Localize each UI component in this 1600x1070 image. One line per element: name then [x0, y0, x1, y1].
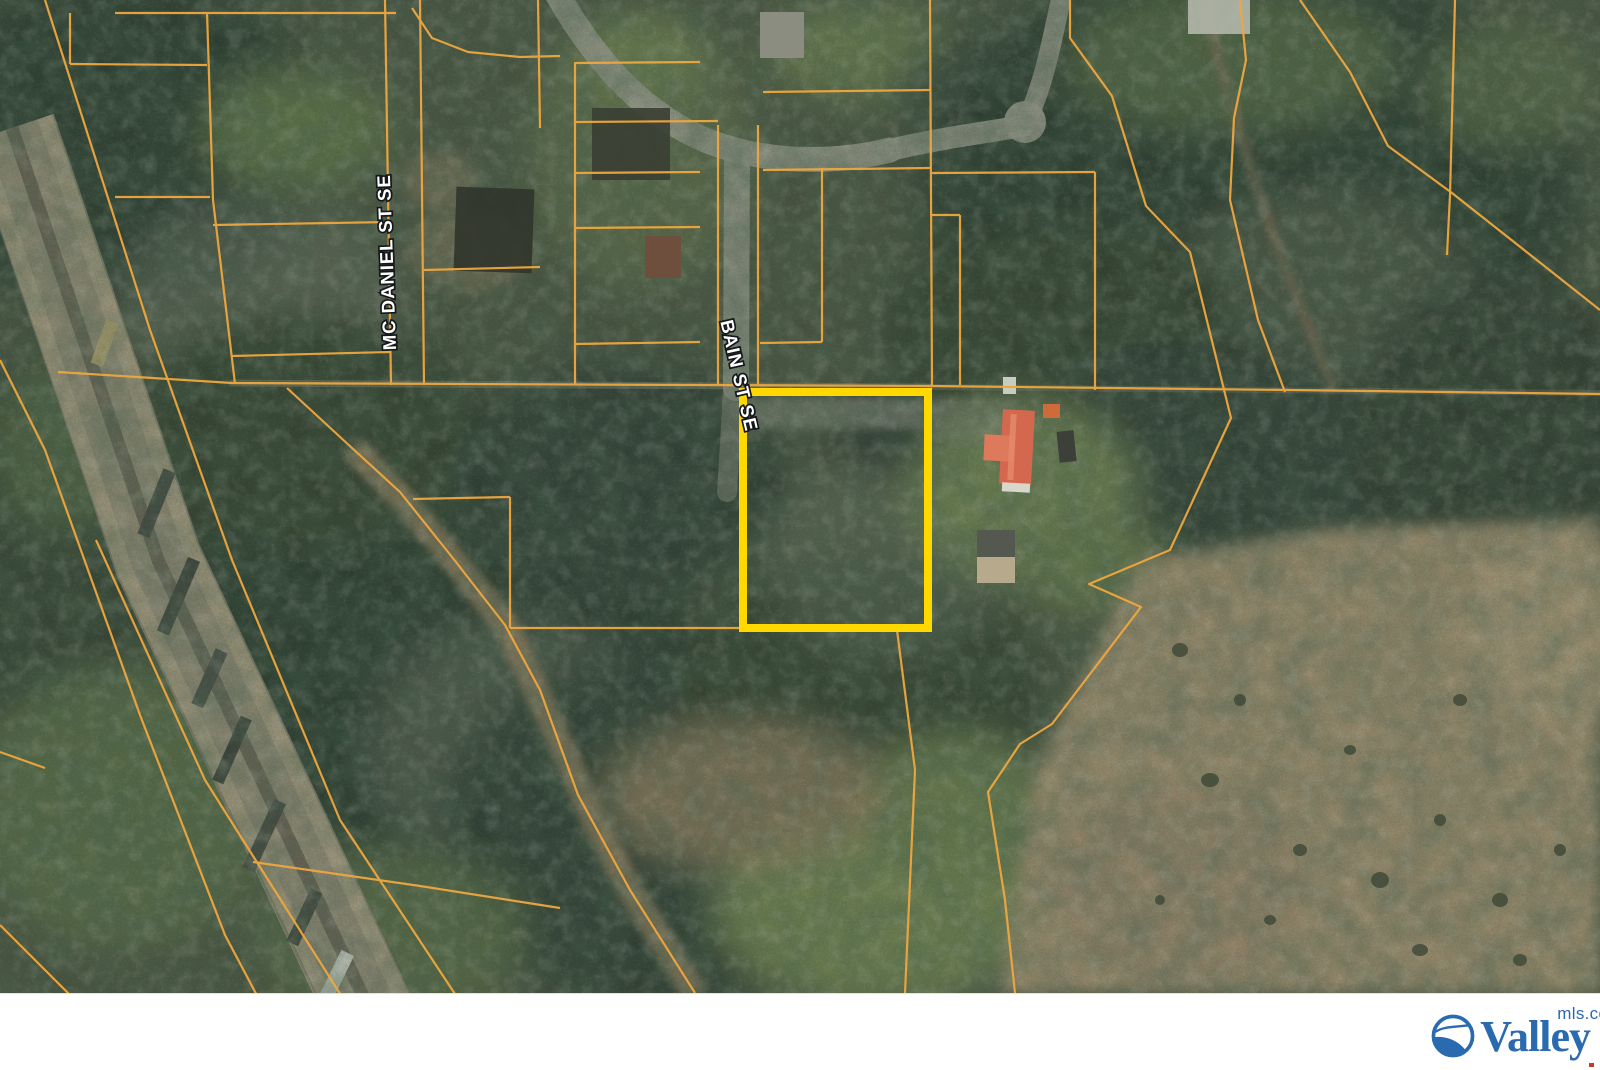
parcel-line [932, 172, 1095, 173]
shed [977, 530, 1015, 583]
valley-mls-logo: Valley mls.com [1430, 1003, 1590, 1061]
map-canvas: MC DANIEL ST SE BAIN ST SE [0, 0, 1600, 993]
valley-logo-icon [1430, 1013, 1476, 1059]
white-vehicle [1003, 377, 1016, 394]
satellite-map: MC DANIEL ST SE BAIN ST SE [0, 0, 1600, 993]
gray-roof-house [760, 12, 804, 58]
valley-logo-suffix: mls.com [1557, 1005, 1600, 1022]
mls-listing-satellite-photo: MC DANIEL ST SE BAIN ST SE Valley mls.co… [0, 0, 1600, 1070]
porch [1002, 482, 1030, 492]
parcel-line [760, 342, 822, 343]
orange-shed [1043, 404, 1060, 418]
parcel-line [70, 64, 207, 65]
dark-roof-house [454, 187, 535, 274]
terrain-texture [0, 0, 1600, 993]
parcel-line [575, 121, 718, 122]
parcel-line [575, 227, 700, 228]
parcel-line [575, 172, 700, 173]
parcel-line [575, 62, 700, 63]
dark-roof-house [592, 108, 670, 180]
brown-roof-house [645, 236, 681, 278]
valley-logo-text: Valley mls.com [1480, 1003, 1590, 1061]
parked-car [1056, 430, 1076, 463]
footer-bar: Valley mls.com [0, 993, 1600, 1070]
red-speck [1589, 1063, 1594, 1067]
